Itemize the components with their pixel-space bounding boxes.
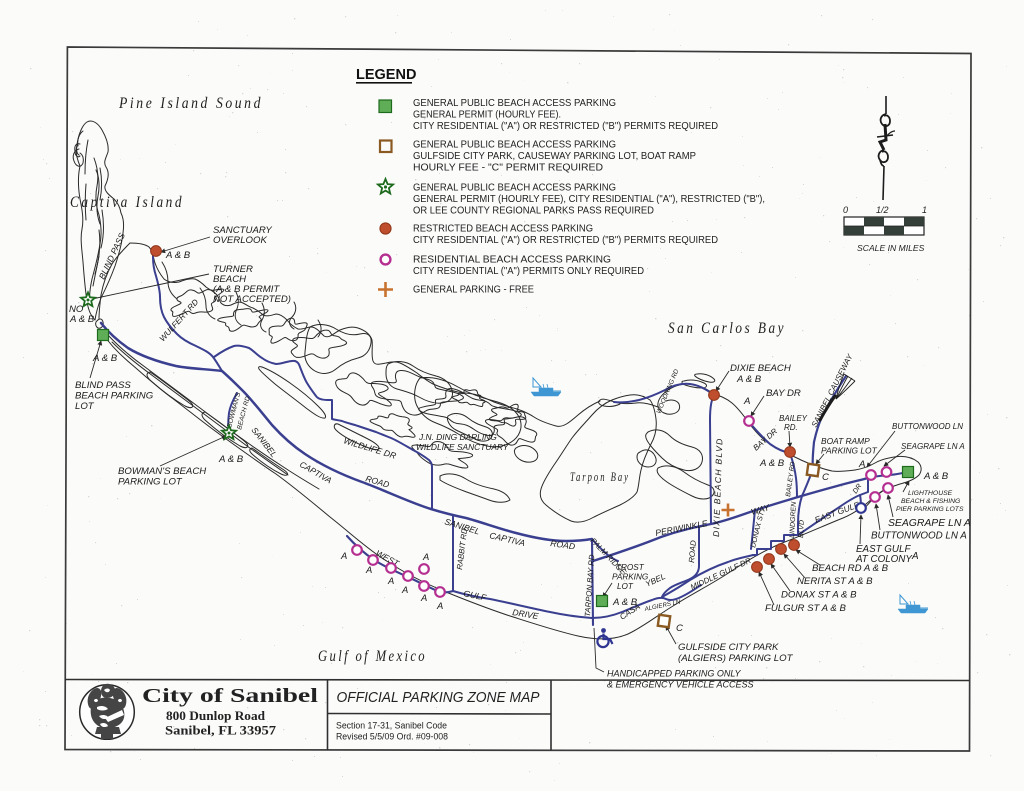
svg-text:CITY RESIDENTIAL ("A") OR REST: CITY RESIDENTIAL ("A") OR RESTRICTED ("B… [413,235,718,246]
svg-text:CITY RESIDENTIAL ("A") PERMITS: CITY RESIDENTIAL ("A") PERMITS ONLY REQU… [413,266,644,277]
svg-text:A: A [401,584,408,595]
svg-text:GULFSIDE CITY PARK, CAUSEWAY P: GULFSIDE CITY PARK, CAUSEWAY PARKING LOT… [413,151,696,162]
svg-text:A & B: A & B [759,458,785,469]
svg-text:HOURLY FEE - "C" PERMIT REQUIR: HOURLY FEE - "C" PERMIT REQUIRED [413,163,603,174]
svg-text:NOT ACCEPTED): NOT ACCEPTED) [213,294,291,305]
svg-text:OVERLOOK: OVERLOOK [213,235,267,246]
svg-text:1/2: 1/2 [876,205,889,215]
svg-text:LOT: LOT [75,401,95,412]
svg-text:WILDLIFE SANCTUARY: WILDLIFE SANCTUARY [416,442,510,452]
svg-text:A & B: A & B [165,250,191,261]
svg-text:GENERAL PUBLIC BEACH ACCESS PA: GENERAL PUBLIC BEACH ACCESS PARKING [413,98,616,109]
svg-text:BLIND PASS: BLIND PASS [75,380,131,391]
svg-text:A & B: A & B [218,454,244,465]
svg-text:LIGHTHOUSE: LIGHTHOUSE [908,490,953,497]
svg-text:Revised 5/5/09 Ord. #09-008: Revised 5/5/09 Ord. #09-008 [336,732,448,742]
svg-text:A: A [340,550,347,561]
svg-text:PARKING: PARKING [612,573,649,582]
svg-text:SCALE IN MILES: SCALE IN MILES [857,243,925,253]
svg-text:A: A [422,551,429,562]
svg-text:GENERAL PARKING - FREE: GENERAL PARKING - FREE [413,285,534,296]
svg-text:Sanibel, FL 33957: Sanibel, FL 33957 [165,724,276,738]
svg-text:San Carlos Bay: San Carlos Bay [668,320,786,337]
svg-text:TROST: TROST [616,563,645,572]
svg-text:PARKING LOT: PARKING LOT [118,477,183,488]
svg-text:RESTRICTED BEACH ACCESS PARKIN: RESTRICTED BEACH ACCESS PARKING [413,224,593,235]
svg-text:BEACH & FISHING: BEACH & FISHING [901,498,960,505]
svg-text:Tarpon Bay: Tarpon Bay [570,469,630,484]
svg-text:BEACH RD A & B: BEACH RD A & B [812,563,889,574]
svg-text:A: A [911,551,919,562]
svg-text:0: 0 [843,205,848,215]
svg-text:PIER PARKING LOTS: PIER PARKING LOTS [896,506,964,513]
svg-text:A: A [743,396,750,407]
svg-text:RESIDENTIAL BEACH ACCESS PARKI: RESIDENTIAL BEACH ACCESS PARKING [413,255,611,266]
svg-text:HANDICAPPED PARKING ONLY: HANDICAPPED PARKING ONLY [607,669,742,679]
svg-text:A: A [436,600,443,611]
svg-text:OR LEE COUNTY REGIONAL PARKS P: OR LEE COUNTY REGIONAL PARKS PASS REQUIR… [413,206,654,217]
svg-text:LOT: LOT [617,582,634,591]
svg-text:A: A [387,575,394,586]
svg-text:A: A [365,564,372,575]
svg-text:BUTTONWOOD LN A: BUTTONWOOD LN A [871,531,967,542]
svg-text:(ALGIERS) PARKING LOT: (ALGIERS) PARKING LOT [678,653,794,664]
svg-text:GENERAL PERMIT (HOURLY FEE).: GENERAL PERMIT (HOURLY FEE). [413,110,561,121]
svg-text:BOAT RAMP: BOAT RAMP [821,436,870,446]
svg-text:GULFSIDE CITY PARK: GULFSIDE CITY PARK [678,642,779,653]
svg-text:C: C [822,472,829,483]
svg-text:PARKING LOT: PARKING LOT [821,446,878,456]
svg-text:DIXIE BEACH: DIXIE BEACH [730,363,791,374]
svg-text:GENERAL PERMIT (HOURLY FEE), C: GENERAL PERMIT (HOURLY FEE), CITY RESIDE… [413,194,765,205]
svg-text:C: C [676,623,683,634]
svg-text:City of Sanibel: City of Sanibel [142,685,319,707]
svg-text:A: A [858,459,865,470]
svg-text:BOWMAN'S BEACH: BOWMAN'S BEACH [118,466,206,477]
svg-text:DONAX ST A & B: DONAX ST A & B [781,590,857,601]
svg-text:Gulf of Mexico: Gulf of Mexico [318,648,427,665]
svg-text:FULGUR ST A & B: FULGUR ST A & B [765,603,846,614]
svg-text:Captiva Island: Captiva Island [70,194,184,211]
svg-text:A & B: A & B [69,314,95,325]
svg-text:A & B: A & B [923,471,949,482]
svg-text:BLVD: BLVD [798,520,806,538]
svg-text:A & B: A & B [92,353,118,364]
svg-text:OFFICIAL PARKING ZONE MAP: OFFICIAL PARKING ZONE MAP [337,690,540,706]
svg-text:SEAGRAPE LN A: SEAGRAPE LN A [901,442,965,451]
svg-text:BUTTONWOOD LN: BUTTONWOOD LN [892,422,963,431]
svg-text:Section 17-31, Sanibel Code: Section 17-31, Sanibel Code [336,721,447,731]
svg-text:800 Dunlop Road: 800 Dunlop Road [166,709,265,723]
svg-text:NERITA ST A & B: NERITA ST A & B [797,576,873,587]
svg-text:J.N. DING DARLING: J.N. DING DARLING [418,432,497,442]
svg-text:A & B: A & B [736,374,762,385]
svg-text:GENERAL PUBLIC BEACH ACCESS PA: GENERAL PUBLIC BEACH ACCESS PARKING [413,140,616,151]
svg-text:BEACH PARKING: BEACH PARKING [75,391,154,402]
svg-text:CITY RESIDENTIAL ("A") OR REST: CITY RESIDENTIAL ("A") OR RESTRICTED ("B… [413,121,718,132]
svg-text:Pine Island Sound: Pine Island Sound [118,95,263,112]
svg-text:BAY DR: BAY DR [766,388,801,399]
svg-text:BAILEY: BAILEY [779,414,808,423]
svg-text:LEGEND: LEGEND [356,67,416,83]
svg-text:A & B: A & B [612,597,638,608]
svg-text:SEAGRAPE LN A: SEAGRAPE LN A [888,518,971,529]
svg-text:RD.: RD. [784,423,798,432]
svg-text:1: 1 [922,205,927,215]
svg-text:A: A [420,592,427,603]
svg-text:GENERAL PUBLIC BEACH ACCESS PA: GENERAL PUBLIC BEACH ACCESS PARKING [413,183,616,194]
